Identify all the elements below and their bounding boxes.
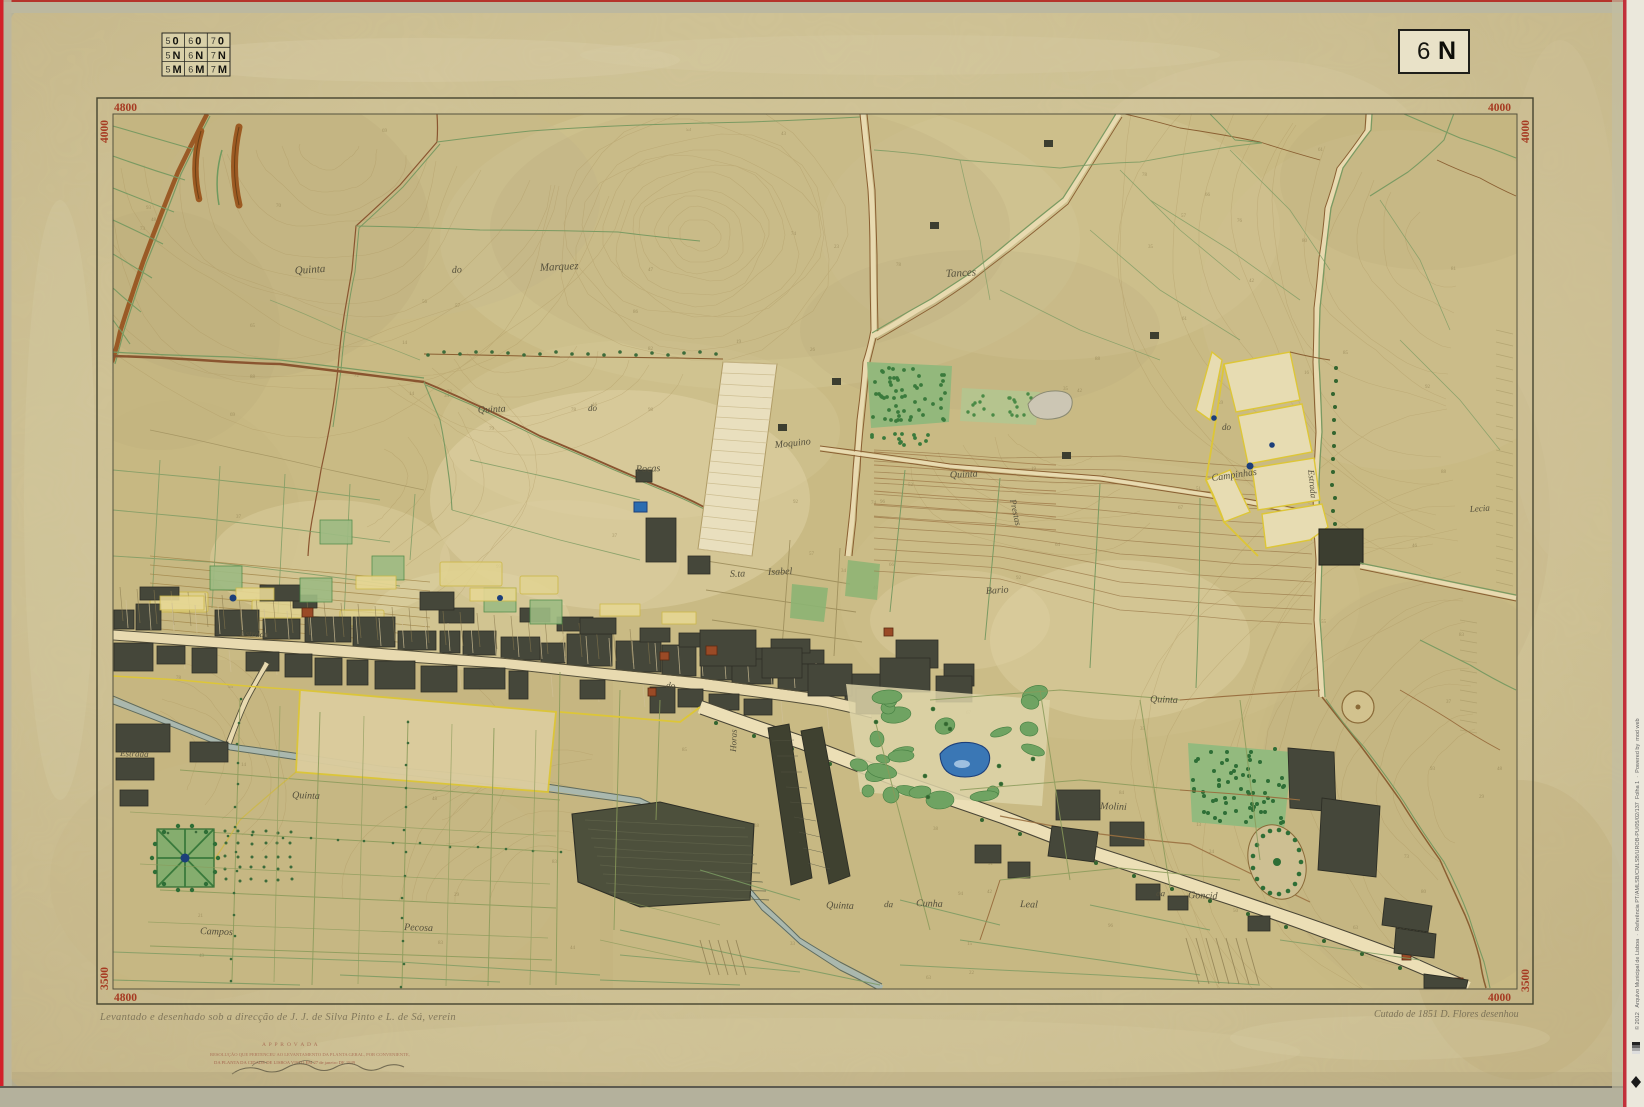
svg-text:29: 29 xyxy=(1479,795,1485,800)
svg-text:83: 83 xyxy=(1459,633,1465,638)
svg-text:Isabel: Isabel xyxy=(767,566,793,578)
svg-text:Estrada: Estrada xyxy=(119,748,149,759)
svg-text:42: 42 xyxy=(987,890,993,895)
svg-text:37: 37 xyxy=(612,534,618,539)
svg-text:73: 73 xyxy=(1404,855,1410,860)
svg-text:66: 66 xyxy=(1205,193,1211,198)
svg-text:38: 38 xyxy=(933,827,939,832)
svg-text:14: 14 xyxy=(241,763,247,768)
svg-text:81: 81 xyxy=(1451,267,1457,272)
svg-text:da: da xyxy=(884,899,894,909)
svg-text:do: do xyxy=(1222,422,1232,432)
svg-text:57: 57 xyxy=(809,552,815,557)
svg-text:79: 79 xyxy=(489,427,495,432)
svg-text:83: 83 xyxy=(438,941,444,946)
svg-text:6: 6 xyxy=(188,36,193,46)
svg-text:7: 7 xyxy=(211,50,216,60)
svg-text:4800: 4800 xyxy=(114,102,137,114)
svg-text:Estrada: Estrada xyxy=(239,628,269,640)
svg-text:83: 83 xyxy=(552,860,558,865)
svg-text:M: M xyxy=(195,64,204,76)
svg-text:48: 48 xyxy=(432,797,438,802)
svg-text:M: M xyxy=(173,64,182,76)
svg-text:57: 57 xyxy=(1181,214,1187,219)
svg-text:78: 78 xyxy=(896,263,902,268)
svg-text:Levantado e desenhado sob a di: Levantado e desenhado sob a direcção de … xyxy=(99,1012,456,1023)
svg-text:52: 52 xyxy=(908,483,914,488)
svg-text:47: 47 xyxy=(648,268,654,273)
svg-text:88: 88 xyxy=(1441,470,1447,475)
svg-text:5: 5 xyxy=(166,65,171,75)
svg-text:7: 7 xyxy=(211,36,216,46)
svg-text:Tances: Tances xyxy=(946,266,977,280)
svg-text:Pocas: Pocas xyxy=(635,463,661,475)
svg-text:78: 78 xyxy=(1142,173,1148,178)
svg-text:4000: 4000 xyxy=(1520,120,1532,143)
svg-text:4000: 4000 xyxy=(1488,992,1511,1004)
svg-text:35: 35 xyxy=(1063,387,1069,392)
svg-text:6: 6 xyxy=(188,65,193,75)
svg-text:76: 76 xyxy=(1237,219,1243,224)
svg-text:98: 98 xyxy=(648,408,654,413)
svg-text:Cunha: Cunha xyxy=(916,898,943,910)
svg-text:61: 61 xyxy=(1182,317,1188,322)
svg-text:Goncid: Goncid xyxy=(1188,890,1219,902)
svg-text:38: 38 xyxy=(754,824,760,829)
svg-text:da: da xyxy=(1156,888,1166,898)
svg-text:85: 85 xyxy=(1343,351,1349,356)
svg-text:3500: 3500 xyxy=(1520,969,1532,992)
svg-text:do: do xyxy=(666,680,676,690)
svg-text:N: N xyxy=(218,50,226,62)
svg-text:3500: 3500 xyxy=(99,967,111,990)
svg-text:43: 43 xyxy=(781,132,787,137)
svg-text:6: 6 xyxy=(188,50,193,60)
svg-text:23: 23 xyxy=(834,245,840,250)
svg-text:Marquez: Marquez xyxy=(539,260,580,274)
svg-text:42: 42 xyxy=(1077,389,1083,394)
svg-text:Quinta: Quinta xyxy=(478,404,506,416)
svg-text:16: 16 xyxy=(1304,371,1310,376)
svg-text:48: 48 xyxy=(1497,767,1503,772)
svg-text:96: 96 xyxy=(1108,924,1114,929)
svg-text:14: 14 xyxy=(409,392,415,397)
svg-text:Quinta: Quinta xyxy=(292,790,320,802)
svg-text:56: 56 xyxy=(422,300,428,305)
svg-text:4000: 4000 xyxy=(1488,102,1511,114)
svg-text:14: 14 xyxy=(402,341,408,346)
svg-text:82: 82 xyxy=(648,347,654,352)
svg-text:88: 88 xyxy=(250,375,256,380)
svg-text:84: 84 xyxy=(1119,791,1125,796)
svg-text:Pecosa: Pecosa xyxy=(403,922,433,934)
svg-text:0: 0 xyxy=(195,36,201,48)
svg-text:21: 21 xyxy=(198,914,204,919)
svg-text:19: 19 xyxy=(736,340,742,345)
svg-text:93: 93 xyxy=(146,206,152,211)
svg-text:5: 5 xyxy=(166,36,171,46)
svg-text:46: 46 xyxy=(1412,544,1418,549)
svg-text:80: 80 xyxy=(1302,239,1308,244)
svg-text:S.ta: S.ta xyxy=(730,568,746,580)
svg-text:35: 35 xyxy=(1148,245,1154,250)
svg-text:do: do xyxy=(452,264,463,276)
svg-text:37: 37 xyxy=(236,515,242,520)
svg-text:6: 6 xyxy=(1417,38,1430,65)
svg-text:66: 66 xyxy=(889,563,895,568)
svg-text:61: 61 xyxy=(1318,148,1324,153)
svg-text:15: 15 xyxy=(967,942,973,947)
svg-text:92: 92 xyxy=(793,500,799,505)
svg-text:55: 55 xyxy=(1321,620,1327,625)
svg-text:N: N xyxy=(173,50,181,62)
svg-text:69: 69 xyxy=(230,413,236,418)
svg-text:85: 85 xyxy=(682,748,688,753)
svg-text:94: 94 xyxy=(958,892,964,897)
svg-text:34: 34 xyxy=(841,569,847,574)
svg-text:Bario: Bario xyxy=(985,584,1008,597)
svg-text:92: 92 xyxy=(1425,385,1431,390)
svg-text:33: 33 xyxy=(790,942,796,947)
svg-text:4800: 4800 xyxy=(114,992,137,1004)
svg-text:92: 92 xyxy=(1016,576,1022,581)
svg-text:70: 70 xyxy=(276,204,282,209)
svg-text:M: M xyxy=(218,64,227,76)
svg-text:Quinta: Quinta xyxy=(294,263,326,277)
svg-text:0: 0 xyxy=(218,36,224,48)
svg-text:DA PLANTA DA CIDADE DE LISBOA: DA PLANTA DA CIDADE DE LISBOA VISTO EM 2… xyxy=(214,1060,356,1065)
svg-text:26: 26 xyxy=(810,348,816,353)
svg-text:5: 5 xyxy=(166,50,171,60)
svg-text:Campos: Campos xyxy=(200,926,233,938)
svg-text:Quinta: Quinta xyxy=(950,469,978,481)
svg-text:Cutado de 1851 D. Flores de: Cutado de 1851 D. Flores desenhou xyxy=(1374,1009,1519,1020)
svg-text:0: 0 xyxy=(173,36,179,48)
svg-text:Quinta: Quinta xyxy=(826,900,854,912)
svg-text:Quinta: Quinta xyxy=(1150,694,1178,706)
svg-text:42: 42 xyxy=(1249,279,1255,284)
svg-text:50: 50 xyxy=(1233,909,1239,914)
svg-text:13: 13 xyxy=(1196,823,1202,828)
svg-text:88: 88 xyxy=(1095,357,1101,362)
svg-text:© 2012 Arquivo Municipal de: © 2012 Arquivo Municipal de Lisboa · Ref… xyxy=(1634,718,1641,1030)
svg-text:55: 55 xyxy=(228,685,234,690)
svg-text:29: 29 xyxy=(454,893,460,898)
svg-text:Lecia: Lecia xyxy=(1468,503,1490,514)
svg-text:63: 63 xyxy=(1353,926,1359,931)
svg-text:80: 80 xyxy=(1421,890,1427,895)
svg-text:65: 65 xyxy=(250,324,256,329)
svg-text:A P P R O V A D A: A P P R O V A D A xyxy=(262,1042,318,1048)
svg-text:57: 57 xyxy=(455,304,461,309)
svg-text:86: 86 xyxy=(633,310,639,315)
svg-text:do: do xyxy=(588,403,598,413)
svg-text:N: N xyxy=(1438,37,1456,65)
svg-text:N: N xyxy=(195,50,203,62)
svg-text:Horas: Horas xyxy=(728,729,739,753)
svg-text:73: 73 xyxy=(140,227,146,232)
svg-text:67: 67 xyxy=(1178,506,1184,511)
svg-text:37: 37 xyxy=(1446,700,1452,705)
svg-text:93: 93 xyxy=(1430,767,1436,772)
svg-text:4000: 4000 xyxy=(99,120,111,143)
svg-text:63: 63 xyxy=(926,976,932,981)
svg-text:22: 22 xyxy=(969,971,975,976)
svg-text:78: 78 xyxy=(571,408,577,413)
svg-text:69: 69 xyxy=(382,129,388,134)
svg-text:44: 44 xyxy=(570,946,576,951)
svg-text:Molini: Molini xyxy=(1099,801,1127,813)
svg-text:74: 74 xyxy=(791,232,797,237)
svg-text:Leal: Leal xyxy=(1019,899,1038,911)
svg-text:7: 7 xyxy=(211,65,216,75)
svg-text:53: 53 xyxy=(686,128,692,133)
